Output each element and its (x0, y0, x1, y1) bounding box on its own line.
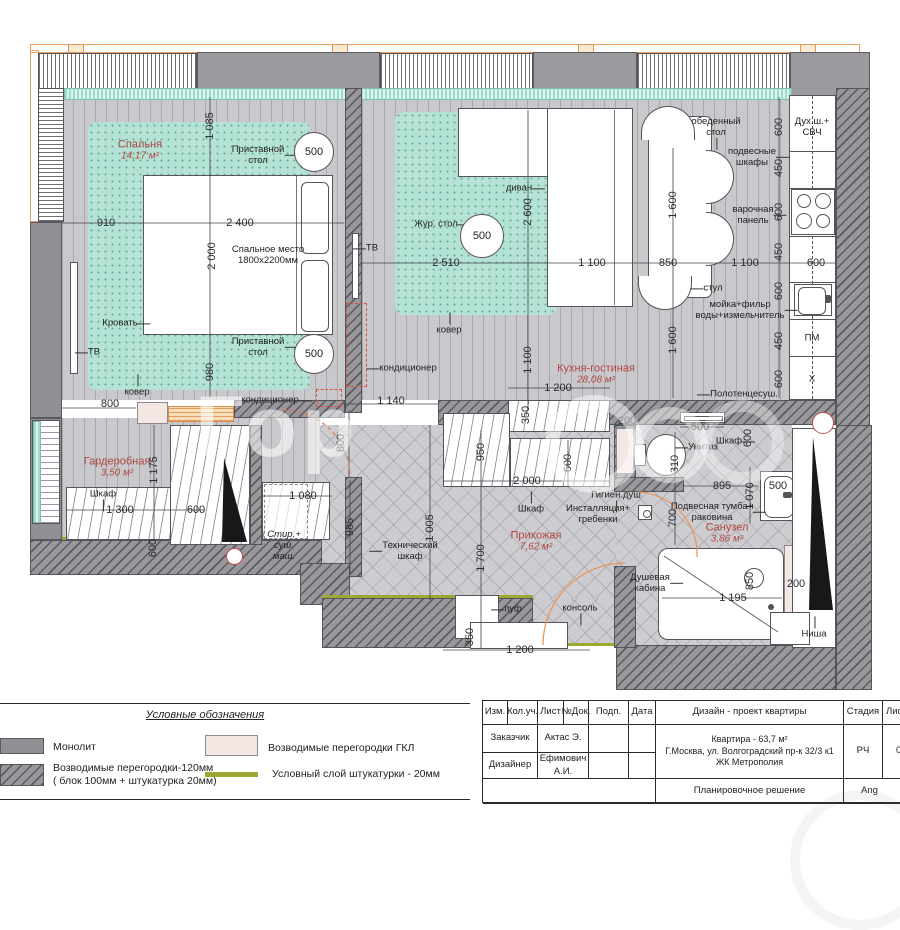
annotation-label: подвесные шкафы (728, 146, 776, 168)
tb-customer-name: Актас Э. (538, 725, 589, 753)
legend-swatch-monolith (0, 738, 44, 754)
dimension-label: 200 (787, 578, 805, 590)
tb-header-podp: Подп. (589, 701, 629, 725)
round-table: 500 (294, 132, 334, 172)
annotation-label: Полотенцесуш. (710, 388, 778, 399)
tb-cell-empty (589, 753, 629, 779)
legend-swatch-plaster (205, 772, 258, 777)
annotation-label: Шкаф (518, 503, 544, 514)
tb-customer-label: Заказчик (483, 725, 538, 753)
tb-address-line3: ЖК Метрополия (716, 757, 783, 769)
watermark-text: Гор (195, 378, 360, 477)
legend-swatch-gkl (205, 735, 258, 756)
watermark-swirl (632, 407, 708, 483)
annotation-label: Спальное место 1800х2200мм (232, 244, 304, 266)
dimension-label: 850 (744, 572, 756, 590)
annotation-label: стул (703, 282, 722, 293)
dimension-label: 800 (101, 398, 119, 410)
tb-designer-name: Ефимович А.И. (538, 753, 589, 779)
annotation-label: Стир.+ суш. маш. (267, 529, 301, 563)
tb-cell-empty (629, 725, 656, 753)
dimension-label: 350 (464, 628, 476, 646)
annotation-label: Дух.ш.+ СВЧ (795, 116, 830, 138)
annotation-label: Приставной стол (232, 336, 285, 358)
dimension-label: 910 (97, 217, 115, 229)
dimension-label: 2 000 (206, 242, 218, 270)
round-table: 500 (460, 214, 504, 258)
dimension-label: 1 600 (667, 326, 679, 354)
dimension-label: 2 510 (432, 257, 460, 269)
floor-plan-page: { "watermark_text": "Гор", "plan": { "ro… (0, 0, 900, 854)
room-name: Санузел (706, 522, 749, 534)
room-area: 7,62 м² (511, 542, 562, 553)
dimension-label: 350 (520, 406, 532, 424)
legend-title: Условные обозначения (100, 709, 310, 721)
annotation-label: Технический шкаф (382, 540, 437, 562)
annotation-label: Инсталляция+ гребенки (566, 503, 630, 525)
dimension-label: 600 (807, 257, 825, 269)
tb-cell-empty (629, 753, 656, 779)
tb-address-line2: Г.Москва, ул. Волгоградский пр-к 32/3 к1 (665, 746, 834, 758)
tb-designer-label: Дизайнер (483, 753, 538, 779)
dimension-label: 450 (773, 243, 785, 261)
dimension-label: 1 100 (731, 257, 759, 269)
tb-header-ndok: №Док. (564, 701, 589, 725)
room-label: Гардеробная3,50 м² (84, 456, 151, 479)
room-label: Санузел3,86 м² (706, 522, 749, 545)
floor-plan-drawing: 1 0859102 4002 0009808008001 1402 5101 1… (0, 0, 900, 700)
room-name: Прихожая (511, 530, 562, 542)
room-name: Гардеробная (84, 456, 151, 468)
annotation-label: консоль (562, 602, 597, 613)
room-area: 3,86 м² (706, 534, 749, 545)
dimension-label: 1 085 (204, 112, 216, 140)
tb-address-line1: Квартира - 63,7 м² (711, 734, 787, 746)
dimension-label: 600 (773, 118, 785, 136)
room-area: 28,08 м² (557, 375, 635, 386)
dimension-label: 1 195 (719, 592, 747, 604)
annotation-label: Кровать (102, 317, 137, 328)
dimension-label: 950 (475, 443, 487, 461)
room-name: Спальня (118, 139, 162, 151)
room-name: Кухня-гостиная (557, 363, 635, 375)
dimension-label: 1 100 (522, 346, 534, 374)
tb-stage-label: Стадия (844, 701, 883, 725)
tb-project-title: Дизайн - проект квартиры (656, 701, 844, 725)
legend-label: Возводимые перегородки ГКЛ (268, 742, 414, 755)
room-label: Спальня14,17 м² (118, 139, 162, 162)
annotation-label: Шкаф (90, 488, 116, 499)
tb-doc-title: Планировочное решение (656, 779, 844, 804)
room-label: Прихожая7,62 м² (511, 530, 562, 553)
legend-swatch-partition (0, 764, 44, 786)
annotation-label: Ниша (801, 628, 826, 639)
annotation-label: Жур. стол (414, 218, 457, 229)
tb-cell-empty (483, 779, 656, 804)
dimension-label: 1 080 (289, 490, 317, 502)
tb-sheet-label: Лист (883, 701, 900, 725)
dimension-label: 450 (773, 332, 785, 350)
dimension-label: 600 (773, 370, 785, 388)
annotation-label: ковер (436, 324, 461, 335)
round-table: 500 (294, 334, 334, 374)
watermark-swirl-faint (790, 790, 900, 930)
annotation-label: Подвесная тумба+ раковина (671, 501, 753, 523)
annotation-label: пуф (504, 603, 522, 614)
dimension-label: 2 400 (226, 217, 254, 229)
annotation-label: обеденный стол (691, 116, 740, 138)
watermark-swirl (545, 395, 643, 493)
legend-label: Монолит (53, 741, 96, 754)
annotation-label: ТВ (366, 242, 378, 253)
annotations-layer: 1 0859102 4002 0009808008001 1402 5101 1… (0, 0, 900, 700)
tb-header-koluch: Кол.уч. (508, 701, 538, 725)
dimension-label: 600 (187, 504, 205, 516)
room-area: 14,17 м² (118, 151, 162, 162)
tb-header-izm: Изм. (483, 701, 508, 725)
tb-header-list: Лист (538, 701, 564, 725)
dimension-label: 1 100 (578, 257, 606, 269)
room-area: 3,50 м² (84, 468, 151, 479)
room-label: Кухня-гостиная28,08 м² (557, 363, 635, 386)
watermark-swirl (700, 400, 784, 484)
dimension-label: 1 005 (424, 514, 436, 542)
dimension-label: 500 (769, 480, 787, 492)
annotation-label: кондиционер (379, 362, 437, 373)
tb-stage-value: РЧ (844, 725, 883, 779)
annotation-label: ковер (124, 386, 149, 397)
tb-cell-empty (589, 725, 629, 753)
dimension-label: 1 300 (106, 504, 134, 516)
dimension-label: 1 140 (377, 395, 405, 407)
dimension-label: 1 200 (506, 644, 534, 656)
annotation-label: Душевая кабина (630, 572, 670, 594)
dimension-label: 2 000 (513, 475, 541, 487)
legend: Условные обозначения Монолит Возводимые … (0, 703, 470, 800)
annotation-label: ТВ (88, 346, 100, 357)
annotation-label: Х (809, 373, 815, 384)
legend-label: Условный слой штукатурки - 20мм (272, 768, 440, 781)
dimension-label: 600 (147, 539, 159, 557)
annotation-label: ПМ (805, 332, 820, 343)
legend-label: Возводимые перегородки-120мм ( блок 100м… (53, 762, 217, 788)
dimension-label: 1 600 (667, 191, 679, 219)
annotation-label: Приставной стол (232, 144, 285, 166)
annotation-label: диван (506, 182, 532, 193)
tb-header-data: Дата (629, 701, 656, 725)
tb-address: Квартира - 63,7 м² Г.Москва, ул. Волгогр… (656, 725, 844, 779)
dimension-label: 1 700 (475, 544, 487, 572)
dimension-label: 850 (659, 257, 677, 269)
title-block: Изм. Кол.уч. Лист №Док. Подп. Дата Дизай… (482, 700, 900, 803)
dimension-label: 2 600 (522, 198, 534, 226)
dimension-label: 600 (773, 282, 785, 300)
dimension-label: 985 (344, 518, 356, 536)
dimension-label: 600 (773, 203, 785, 221)
annotation-label: варочная панель (732, 204, 773, 226)
annotation-label: мойка+фильр воды+измельчитель (696, 299, 785, 321)
tb-sheet-value: 0 (883, 725, 900, 779)
